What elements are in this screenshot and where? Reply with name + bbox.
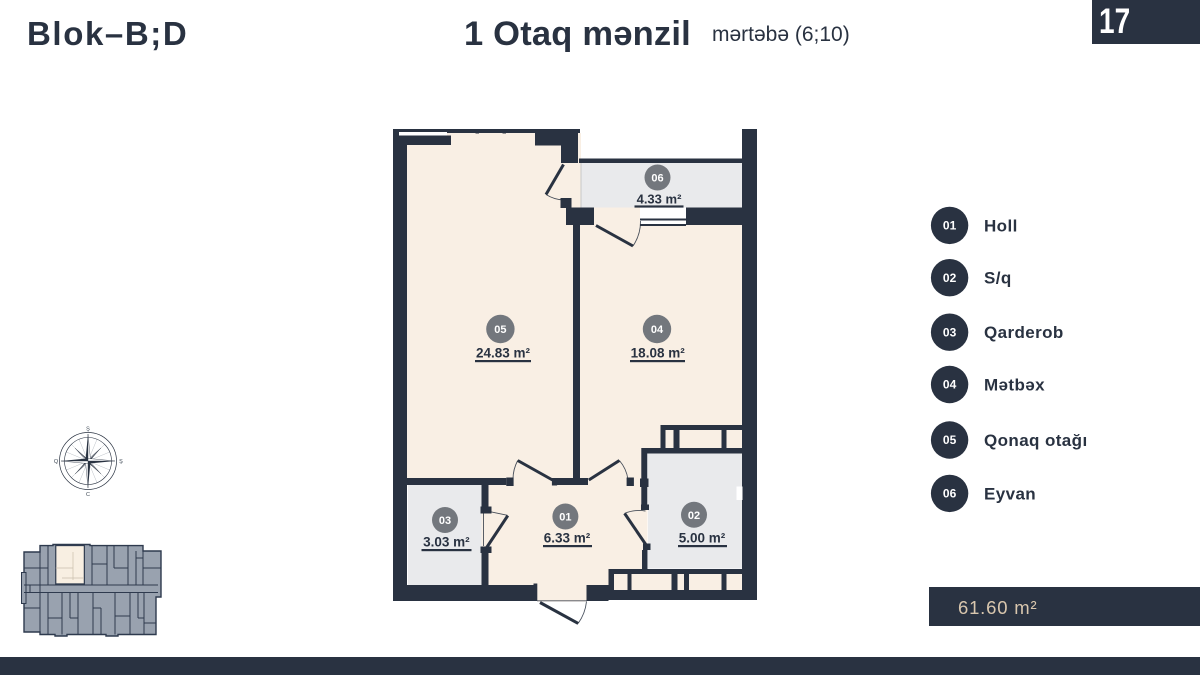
svg-text:Eyvan: Eyvan xyxy=(984,484,1036,503)
svg-text:04: 04 xyxy=(651,324,664,336)
svg-text:01: 01 xyxy=(559,512,571,524)
svg-text:Qarderob: Qarderob xyxy=(984,323,1064,342)
svg-text:24.83 m²: 24.83 m² xyxy=(476,346,531,361)
svg-text:Mətbəx: Mətbəx xyxy=(984,376,1045,395)
svg-text:Holl: Holl xyxy=(984,216,1018,235)
svg-text:Q: Q xyxy=(54,459,59,465)
svg-text:18.08 m²: 18.08 m² xyxy=(631,346,686,361)
svg-text:5.00 m²: 5.00 m² xyxy=(679,531,726,546)
svg-text:Ş: Ş xyxy=(86,427,90,433)
svg-text:05: 05 xyxy=(494,324,506,336)
svg-text:4.33 m²: 4.33 m² xyxy=(637,192,682,207)
svg-text:6.33 m²: 6.33 m² xyxy=(544,531,591,546)
svg-text:C: C xyxy=(86,492,90,497)
svg-text:01: 01 xyxy=(943,219,957,233)
svg-text:Ş: Ş xyxy=(119,459,123,465)
svg-text:06: 06 xyxy=(943,487,957,501)
svg-text:02: 02 xyxy=(688,510,700,522)
svg-text:02: 02 xyxy=(943,271,957,285)
svg-text:3.03 m²: 3.03 m² xyxy=(423,535,470,550)
svg-text:04: 04 xyxy=(943,378,957,392)
svg-text:06: 06 xyxy=(651,173,663,185)
svg-text:05: 05 xyxy=(943,433,957,447)
svg-text:03: 03 xyxy=(943,325,957,339)
svg-text:03: 03 xyxy=(439,515,451,527)
svg-text:S/q: S/q xyxy=(984,269,1012,288)
svg-text:Qonaq otağı: Qonaq otağı xyxy=(984,431,1088,450)
